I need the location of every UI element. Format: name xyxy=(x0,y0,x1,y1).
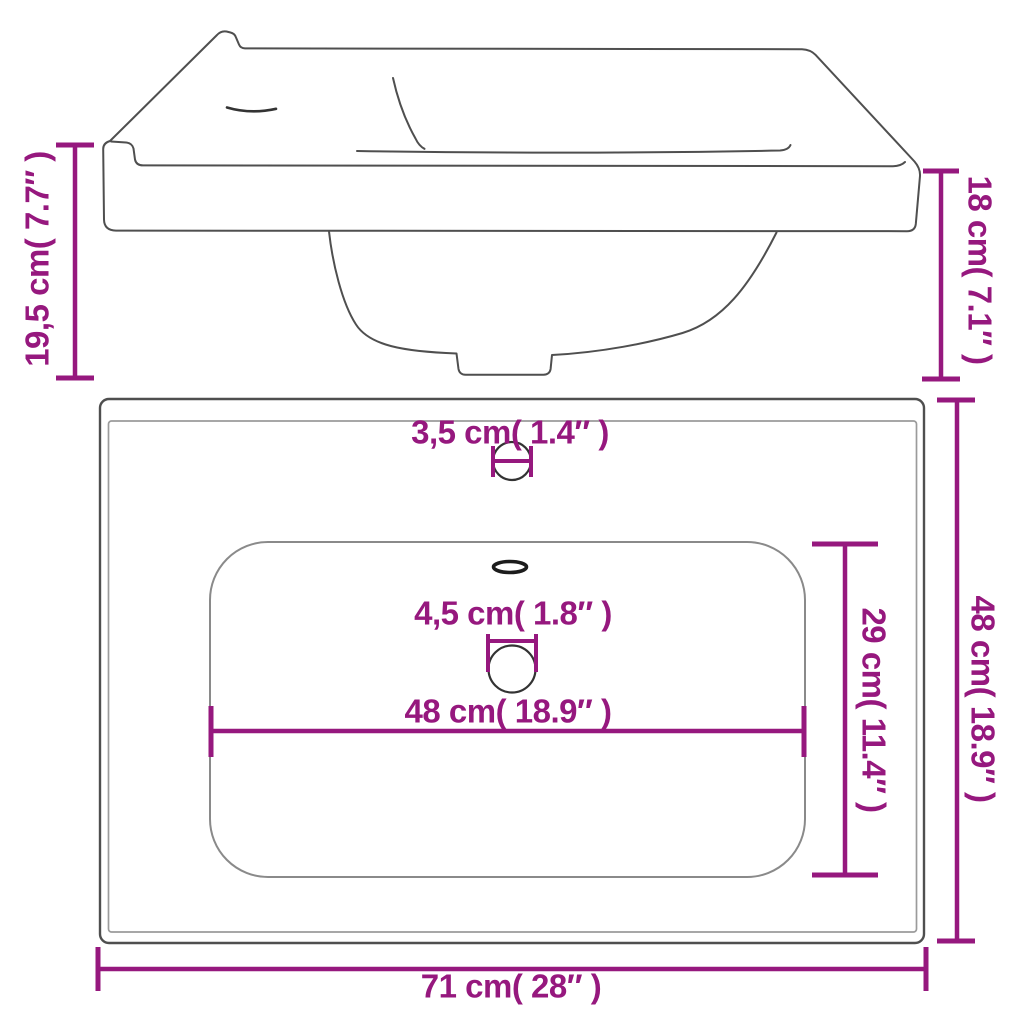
dimension-lines xyxy=(56,145,975,991)
top-view xyxy=(100,399,924,943)
sink-dimension-diagram: 19,5 cm( 7.7″ ) 18 cm( 7.1″ ) 3,5 cm( 1.… xyxy=(0,0,1024,1024)
dim-label-basin-width: 48 cm( 18.9″ ) xyxy=(405,695,612,728)
dim-label-basin-depth: 29 cm( 11.4″ ) xyxy=(858,607,891,812)
side-view-inner-corner-curve xyxy=(393,78,425,149)
dim-label-side-height-right: 18 cm( 7.1″ ) xyxy=(964,175,997,364)
dim-label-side-height-total: 19,5 cm( 7.7″ ) xyxy=(21,151,54,367)
side-view-bowl-profile xyxy=(329,232,777,375)
dim-label-drain-hole: 4,5 cm( 1.8″ ) xyxy=(414,597,612,630)
diagram-canvas xyxy=(0,0,1024,1024)
side-view xyxy=(103,31,920,374)
drain-hole-circle xyxy=(489,646,536,693)
dim-faucet-hole-lines xyxy=(493,446,531,477)
dim-label-overall-width: 71 cm( 28″ ) xyxy=(421,970,601,1003)
dim-side-height-total-lines xyxy=(56,145,94,378)
side-view-outline xyxy=(103,31,920,231)
dim-label-overall-depth: 48 cm( 18.9″ ) xyxy=(967,596,1000,803)
side-view-front-rim-line xyxy=(111,142,905,167)
dim-side-height-right-lines xyxy=(922,171,960,379)
dim-label-faucet-hole: 3,5 cm( 1.4″ ) xyxy=(411,416,609,449)
side-view-faucet-hole-arc xyxy=(227,108,276,112)
overflow-hole-ellipse xyxy=(494,562,527,573)
top-view-inner-border xyxy=(109,421,917,932)
